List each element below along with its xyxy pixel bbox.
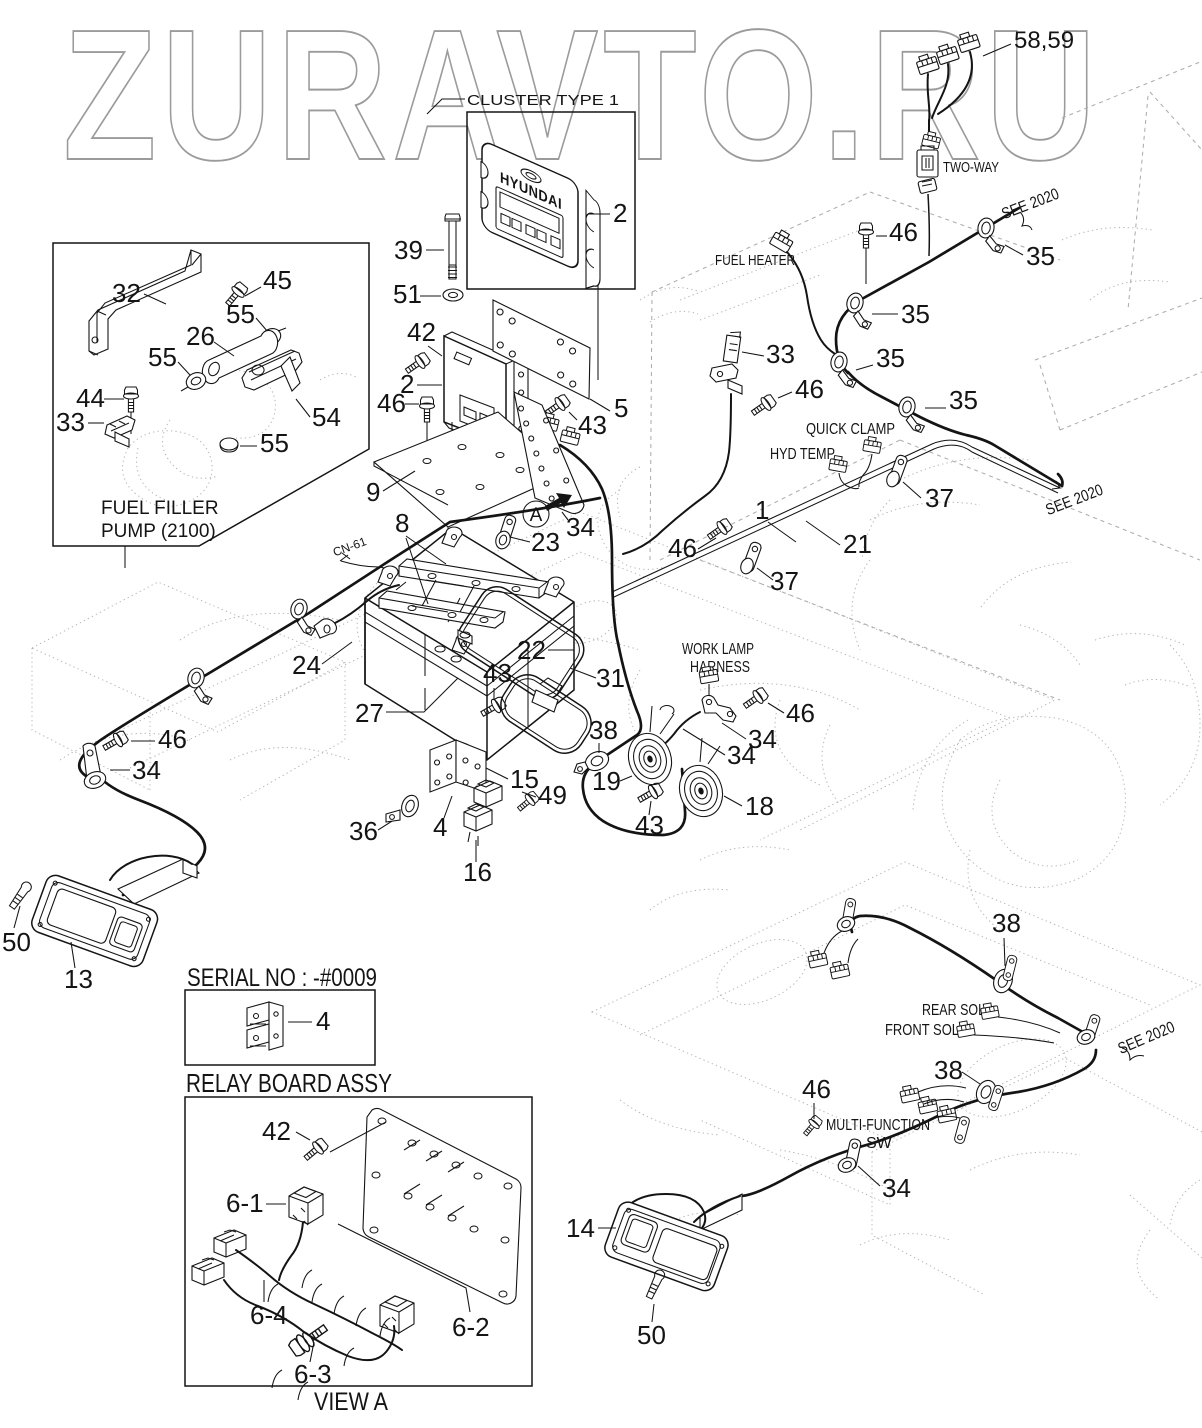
svg-text:55: 55 [260,428,289,458]
svg-text:38: 38 [992,908,1021,938]
svg-text:TWO-WAY: TWO-WAY [943,159,999,176]
svg-text:18: 18 [745,791,774,821]
svg-text:CN-61: CN-61 [331,534,369,559]
svg-text:55: 55 [148,342,177,372]
svg-text:43: 43 [578,410,607,440]
svg-text:46: 46 [158,724,187,754]
svg-text:VIEW A: VIEW A [314,1388,388,1416]
svg-text:35: 35 [876,343,905,373]
svg-text:RELAY BOARD ASSY: RELAY BOARD ASSY [186,1068,392,1098]
svg-text:SW: SW [866,1135,893,1152]
svg-text:46: 46 [377,388,406,418]
svg-text:49: 49 [538,780,567,810]
svg-text:50: 50 [2,927,31,957]
svg-text:HYD TEMP: HYD TEMP [770,446,835,463]
svg-text:33: 33 [56,407,85,437]
svg-text:26: 26 [186,321,215,351]
svg-text:34: 34 [566,512,595,542]
svg-text:PUMP (2100): PUMP (2100) [101,521,216,542]
svg-text:42: 42 [262,1116,291,1146]
svg-text:34: 34 [727,740,756,770]
svg-text:46: 46 [786,698,815,728]
svg-text:REAR SOL: REAR SOL [922,1002,985,1019]
svg-text:33: 33 [766,339,795,369]
svg-text:54: 54 [312,402,341,432]
svg-text:42: 42 [407,317,436,347]
svg-text:14: 14 [566,1213,595,1243]
svg-text:SEE 2020: SEE 2020 [1116,1019,1178,1058]
svg-text:36: 36 [349,816,378,846]
svg-text:34: 34 [132,755,161,785]
svg-text:24: 24 [292,650,321,680]
svg-text:16: 16 [463,857,492,887]
svg-text:8: 8 [395,508,409,538]
svg-text:1: 1 [755,495,769,525]
svg-text:6-2: 6-2 [452,1312,490,1342]
svg-text:FUEL HEATER: FUEL HEATER [715,252,795,269]
svg-text:WORK LAMP: WORK LAMP [682,641,754,658]
svg-text:35: 35 [901,299,930,329]
svg-text:38: 38 [589,715,618,745]
svg-text:37: 37 [925,483,954,513]
svg-text:55: 55 [226,299,255,329]
svg-text:22: 22 [517,635,546,665]
svg-text:21: 21 [843,529,872,559]
svg-text:32: 32 [112,278,141,308]
svg-text:35: 35 [949,385,978,415]
svg-text:46: 46 [802,1074,831,1104]
svg-text:50: 50 [637,1320,666,1350]
svg-text:MULTI-FUNCTION: MULTI-FUNCTION [826,1117,930,1134]
svg-text:4: 4 [316,1006,330,1036]
svg-text:SEE 2020: SEE 2020 [1043,482,1105,519]
svg-text:46: 46 [795,374,824,404]
svg-text:45: 45 [263,265,292,295]
svg-text:15: 15 [510,764,539,794]
svg-text:QUICK CLAMP: QUICK CLAMP [806,421,895,438]
svg-text:6-1: 6-1 [226,1188,264,1218]
svg-text:2: 2 [613,198,627,228]
svg-text:CLUSTER TYPE 1: CLUSTER TYPE 1 [467,92,619,109]
svg-text:27: 27 [355,698,384,728]
svg-text:46: 46 [889,217,918,247]
svg-text:34: 34 [882,1173,911,1203]
svg-text:37: 37 [770,566,799,596]
svg-text:43: 43 [483,658,512,688]
svg-text:FRONT SOL: FRONT SOL [885,1022,959,1039]
svg-text:9: 9 [366,477,380,507]
svg-text:5: 5 [614,393,628,423]
svg-text:35: 35 [1026,241,1055,271]
svg-text:4: 4 [433,812,447,842]
svg-text:38: 38 [934,1055,963,1085]
svg-text:46: 46 [668,533,697,563]
svg-text:FUEL FILLER: FUEL FILLER [101,498,219,519]
svg-text:6-3: 6-3 [294,1359,332,1389]
svg-text:13: 13 [64,964,93,994]
svg-text:39: 39 [394,235,423,265]
svg-text:SERIAL NO : -#0009: SERIAL NO : -#0009 [187,964,377,992]
svg-text:23: 23 [531,527,560,557]
svg-text:51: 51 [393,279,422,309]
svg-text:31: 31 [596,663,625,693]
svg-text:58,59: 58,59 [1014,27,1074,54]
